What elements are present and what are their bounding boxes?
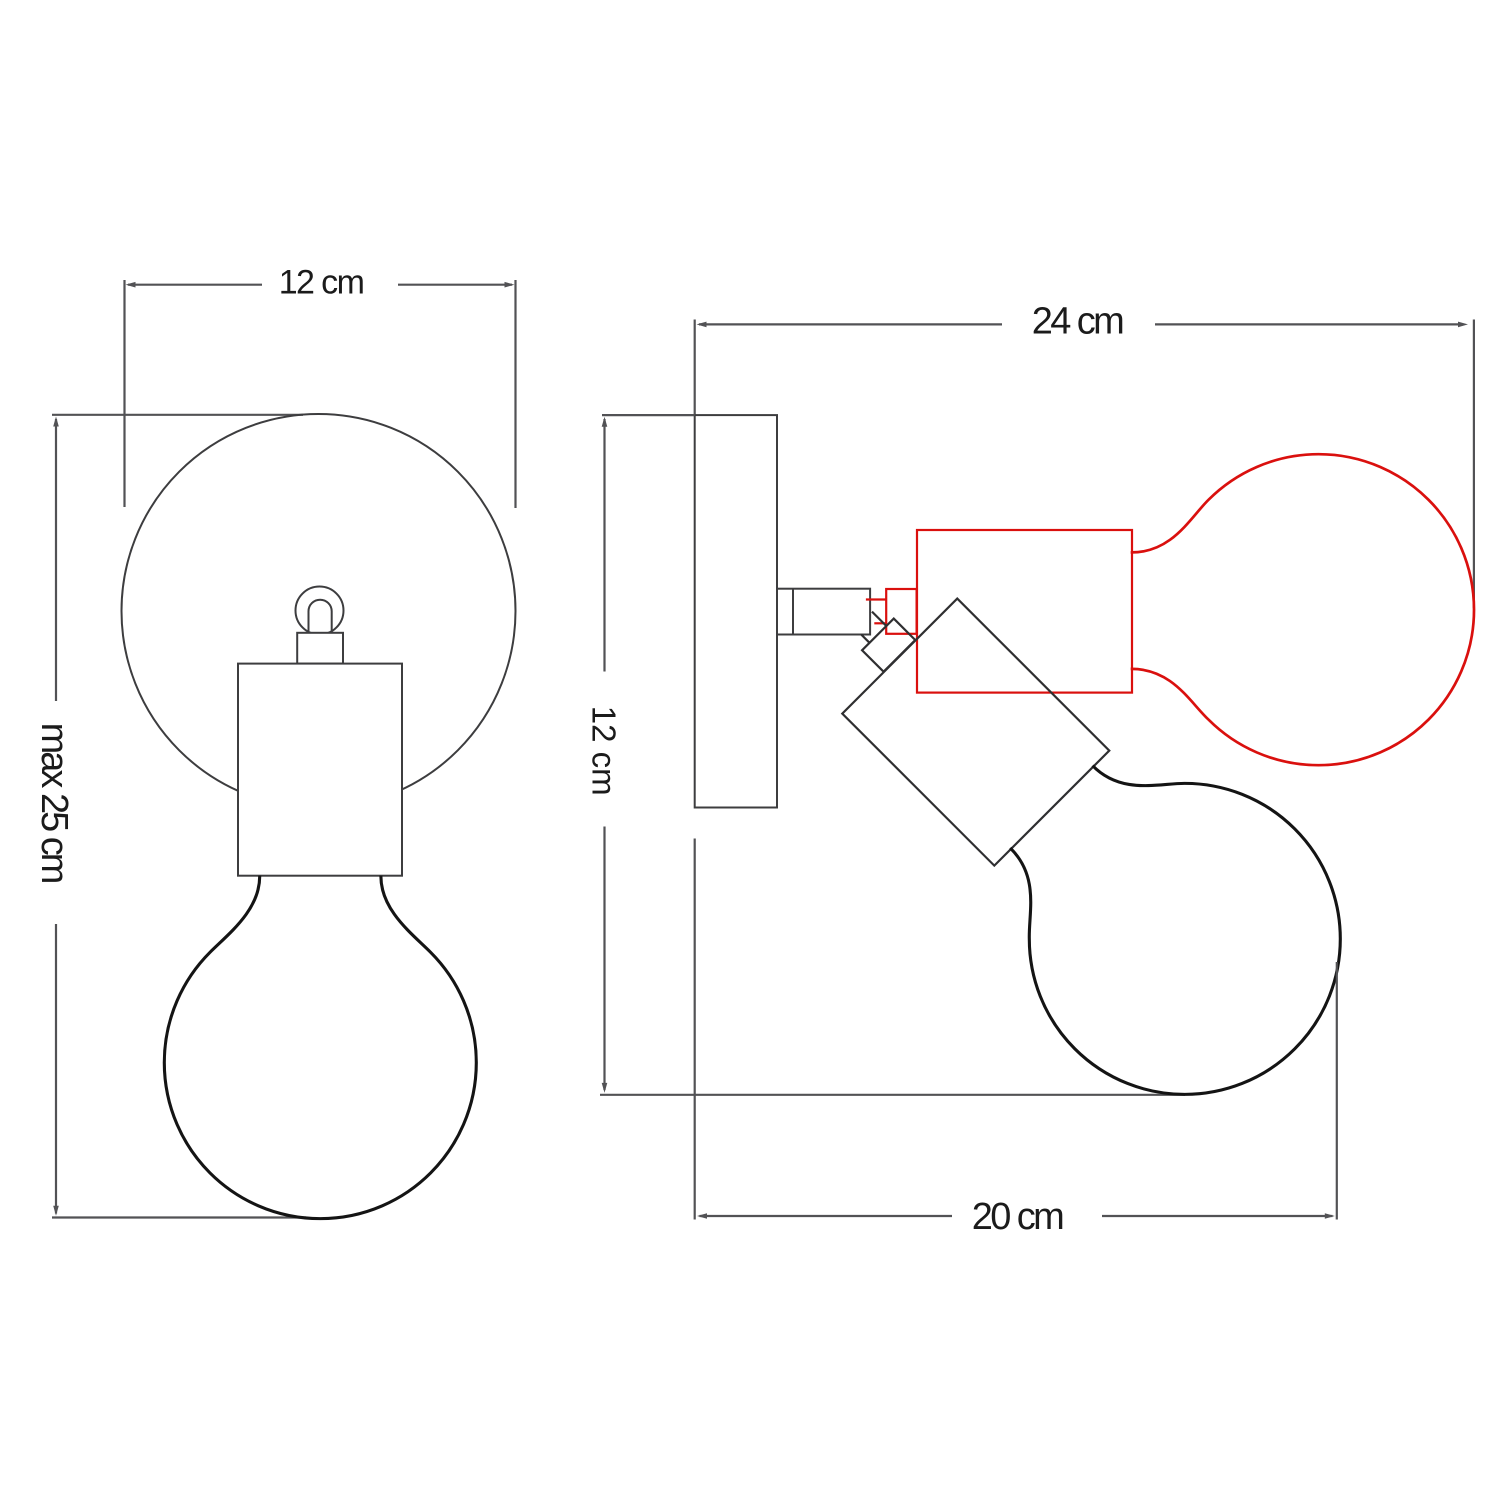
- svg-text:24 cm: 24 cm: [1032, 300, 1123, 342]
- svg-text:20 cm: 20 cm: [972, 1196, 1063, 1238]
- svg-text:12 cm: 12 cm: [586, 706, 623, 796]
- svg-text:12 cm: 12 cm: [279, 264, 364, 302]
- svg-text:max 25 cm: max 25 cm: [33, 723, 75, 883]
